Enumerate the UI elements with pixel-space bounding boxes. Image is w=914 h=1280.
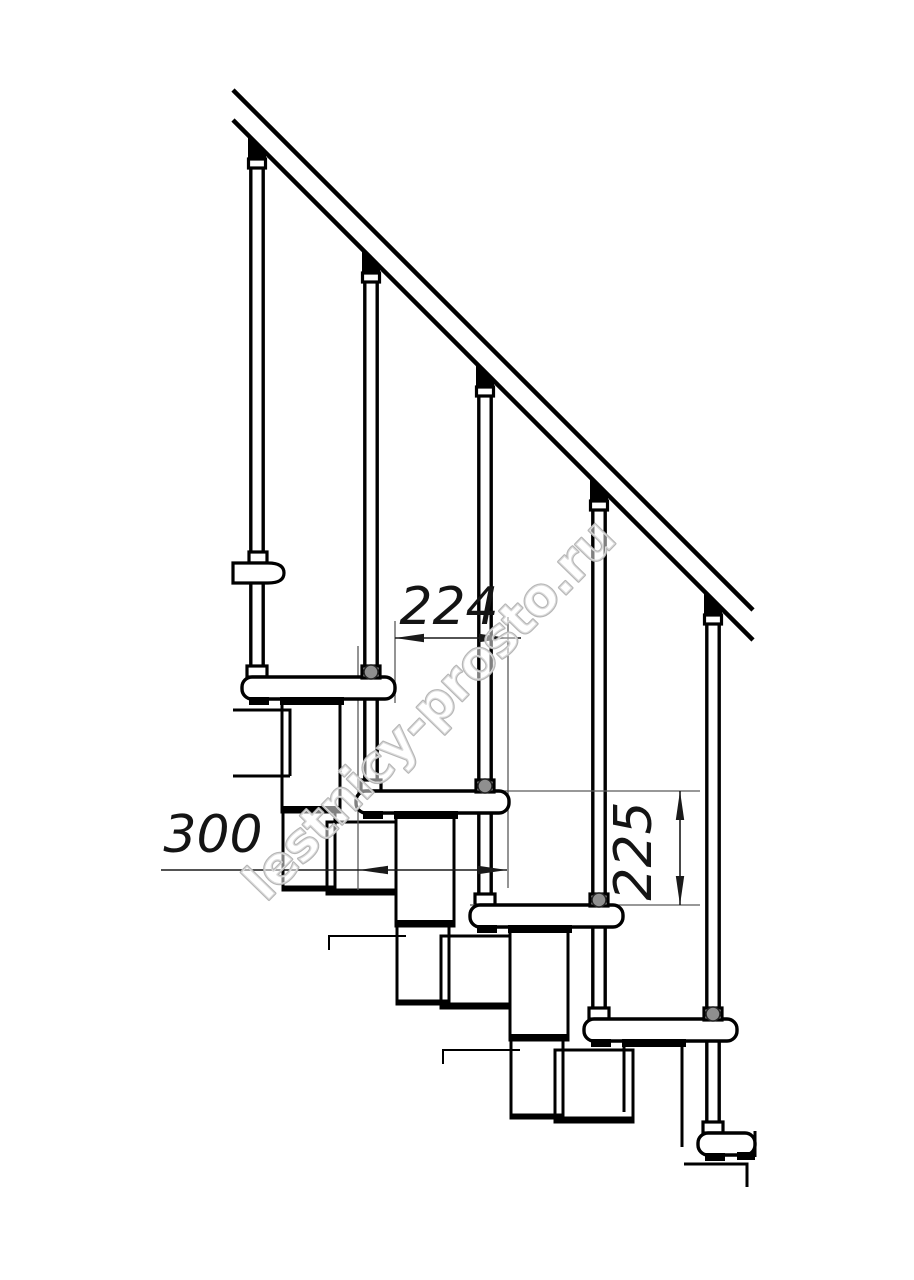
baluster-5 bbox=[703, 591, 723, 1133]
bracket-bar bbox=[233, 563, 284, 583]
baluster-1 bbox=[247, 135, 267, 677]
dim-arrow-225-up bbox=[676, 791, 684, 820]
module-body-2 bbox=[396, 812, 454, 926]
module-connector-3 bbox=[555, 1050, 633, 1122]
dimension-225: 225 bbox=[604, 791, 684, 905]
clamp-node-4 bbox=[706, 1007, 720, 1021]
baluster-2 bbox=[361, 249, 381, 791]
module-rear-edge-1 bbox=[329, 936, 406, 950]
tread-5 bbox=[698, 1131, 755, 1161]
dim-label-rise: 225 bbox=[604, 801, 664, 900]
clamp-node-1 bbox=[364, 665, 378, 679]
dim-arrow-225-down bbox=[676, 876, 684, 905]
module-body-3 bbox=[510, 926, 568, 1040]
tread-mount-tab bbox=[705, 1153, 725, 1161]
tread-board bbox=[698, 1133, 755, 1155]
tread-mount-plate bbox=[737, 1152, 755, 1160]
module-connector-4-cut bbox=[684, 1164, 747, 1187]
staircase-drawing: 224 300 225 lestnicy-prosto.ru bbox=[0, 0, 914, 1280]
drawing-canvas: 224 300 225 lestnicy-prosto.ru bbox=[0, 0, 914, 1280]
dim-arrow-300-left bbox=[359, 866, 388, 874]
bracket-collar bbox=[249, 552, 267, 563]
tread-4 bbox=[584, 1019, 737, 1047]
clamp-node-2 bbox=[478, 779, 492, 793]
module-rear-edge-2 bbox=[443, 1050, 520, 1064]
tread-1 bbox=[242, 677, 395, 705]
module-connector-2 bbox=[441, 936, 519, 1008]
tread-3 bbox=[470, 905, 623, 933]
handrail bbox=[233, 90, 753, 640]
handrail-top-line bbox=[233, 90, 753, 610]
upper-rail-bracket bbox=[233, 552, 284, 583]
